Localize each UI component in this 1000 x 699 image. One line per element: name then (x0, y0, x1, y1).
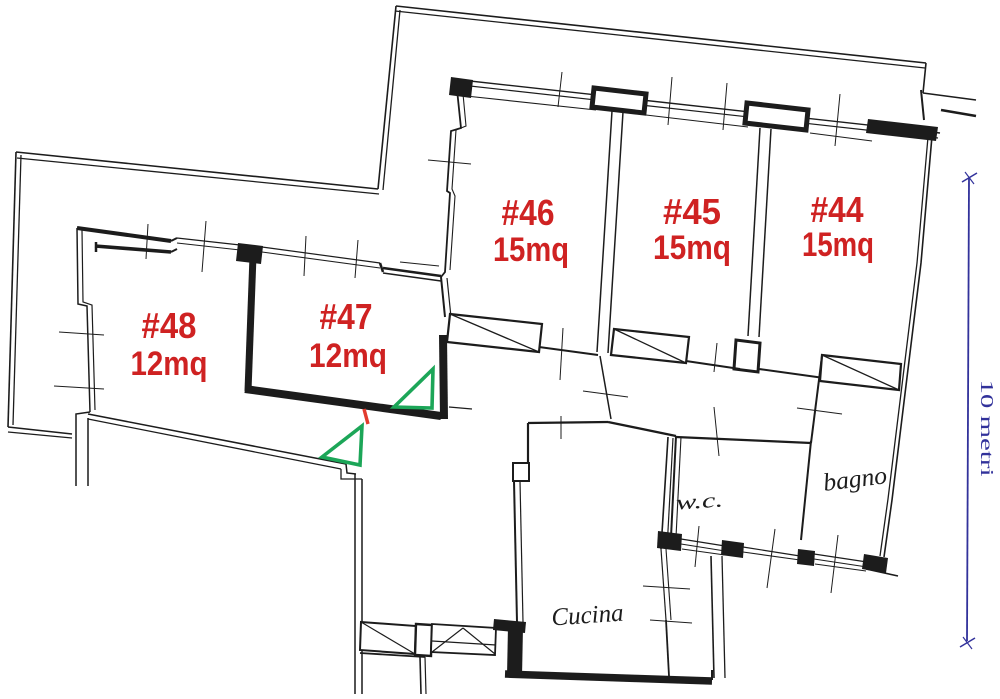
svg-text:#44: #44 (811, 189, 864, 230)
svg-text:12mq: 12mq (309, 337, 387, 375)
svg-text:15mq: 15mq (802, 226, 874, 264)
svg-text:12mq: 12mq (131, 345, 208, 383)
svg-text:10 metri: 10 metri (977, 380, 997, 477)
svg-text:#48: #48 (142, 305, 197, 346)
svg-text:Cucina: Cucina (551, 600, 625, 632)
svg-text:15mq: 15mq (493, 231, 569, 269)
svg-text:15mq: 15mq (653, 229, 731, 267)
svg-text:#46: #46 (502, 192, 555, 233)
svg-text:#47: #47 (320, 296, 373, 337)
svg-text:w.c.: w.c. (675, 487, 724, 514)
svg-text:#45: #45 (663, 191, 721, 232)
